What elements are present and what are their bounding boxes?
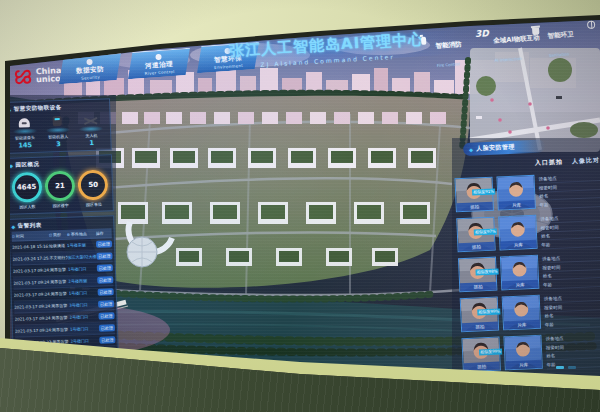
device-stat: 智能摄像头 145 — [7, 114, 42, 150]
device-label: 智能摄像头 — [15, 135, 35, 141]
nav-tab[interactable]: 3D 全域AI物联互动 AI Interaction — [475, 25, 538, 67]
alarm-type: 周界告警 — [51, 303, 69, 309]
device-stat: 智能机器人 3 — [41, 113, 76, 149]
alarm-type: 周界告警 — [51, 291, 69, 297]
capture-label: 抓拍 — [458, 242, 494, 252]
capture-label: 抓拍 — [464, 362, 500, 372]
info-age: 年龄 — [541, 239, 600, 250]
face-info-column: 设备地点 报警时间 姓名 年龄 — [544, 292, 600, 331]
tab-sublabel: Sanitation — [549, 52, 570, 58]
tab-sublabel: Fire Control — [437, 62, 460, 69]
tab-sublabel: AI Interaction — [495, 56, 522, 63]
alarm-time: 2021-03-17 09:24:35 — [13, 268, 50, 274]
alarm-place-link[interactable]: 3号楼门口 — [69, 302, 98, 308]
face-library-photo[interactable]: 片库 — [503, 335, 542, 371]
control-room-photo: China unicom中国联通 数据安防 Security 河道治理 Rive… — [0, 0, 600, 412]
face-library-photo[interactable]: 片库 — [496, 175, 535, 211]
stat-label: 园区人数 — [19, 204, 35, 210]
alarm-time: 2021-03-17 09:24:20 — [15, 327, 52, 333]
stat-label: 园区楼宇 — [53, 203, 69, 209]
nav-tab[interactable]: 一网统管 Manage — [587, 15, 600, 57]
face-capture-photo[interactable]: 相似度98% 抓拍 — [458, 257, 497, 293]
stat-value: 4645 — [11, 172, 42, 203]
dome-camera-icon — [19, 118, 30, 127]
face-header-label: 人脸安防管理 — [476, 143, 515, 154]
face-info-column: 设备地点 报警时间 姓名 年龄 — [538, 172, 600, 211]
alarm-place-link[interactable]: 2号楼门口 — [70, 338, 99, 344]
alarm-type: 垃圾满溢 — [49, 243, 67, 249]
face-subtabs: 入口抓拍 人像比对 — [454, 156, 600, 171]
capture-label: 抓拍 — [462, 322, 498, 332]
glow-base — [79, 126, 103, 133]
alarm-time: 2021-03-17 09:24:33 — [13, 279, 50, 285]
alarm-type: 不文明行为 — [49, 255, 67, 261]
alarm-action-button[interactable]: 已处理 — [98, 312, 114, 320]
face-capture-photo[interactable]: 相似度99% 抓拍 — [460, 297, 499, 333]
face-library-photo[interactable]: 片库 — [498, 215, 537, 251]
trash-bin-icon — [531, 25, 541, 36]
alarm-table: ⊙时间⊡类型⊕事件地点操作 2021-04-18 15:16:01 垃圾满溢 1… — [12, 228, 116, 349]
drone-icon — [84, 116, 98, 125]
stat-label: 园区单位 — [86, 202, 102, 208]
device-label: 智能机器人 — [48, 134, 68, 140]
alarm-time: 2021-03-17 09:24:31 — [14, 291, 51, 297]
tab-icon — [86, 58, 92, 64]
face-capture-photo[interactable]: 相似度97% 抓拍 — [456, 217, 495, 253]
robot-icon — [53, 116, 62, 126]
similarity-badge: 相似度97% — [474, 229, 497, 236]
library-label: 片库 — [504, 320, 540, 330]
face-match-row: 相似度97% 抓拍 片库 设备地点 报警时间 姓名 年龄 — [456, 212, 600, 255]
alarm-time: 2021-03-17 09:24:26 — [15, 315, 52, 321]
stat-ring: 4645 园区人数 — [11, 172, 42, 210]
iot-devices-panel: ◆ 智慧安防物联设备 智能摄像头 145 智能机器人 3 无人机 1 — [4, 98, 112, 154]
alarm-place-link[interactable]: 张江大厦02大楼 — [67, 254, 96, 260]
capture-label: 抓拍 — [460, 282, 496, 292]
fire-extinguisher-icon — [419, 35, 429, 46]
tag-icon: ⊡ — [49, 232, 53, 237]
alarm-type: 周界告警 — [50, 267, 68, 273]
alarm-action-button[interactable]: 已处理 — [99, 336, 115, 344]
stat-value: 21 — [44, 171, 75, 202]
similarity-badge: 相似度99% — [477, 308, 500, 315]
library-label: 片库 — [506, 360, 542, 370]
alarm-time: 2021-04-18 15:16:01 — [12, 244, 49, 250]
clock-icon: ⊙ — [12, 234, 16, 239]
stat-ring: 21 园区楼宇 — [44, 171, 75, 209]
library-label: 片库 — [502, 280, 538, 290]
column-header: ⊡类型 — [49, 232, 67, 238]
face-info-column: 设备地点 报警时间 姓名 年龄 — [540, 212, 600, 251]
similarity-badge: 相似度98% — [476, 269, 499, 276]
capture-label: 抓拍 — [457, 202, 493, 212]
similarity-badge: 相似度91% — [472, 189, 495, 196]
device-count: 3 — [56, 140, 61, 148]
devices-header: 智慧安防物联设备 — [13, 104, 61, 113]
nav-tab[interactable]: 智能环卫 Sanitation — [531, 20, 594, 62]
face-info-column: 设备地点 报警时间 姓名 年龄 — [542, 252, 600, 291]
park-overview-panel: ◆ 园区概况 4645 园区人数 21 园区楼宇 50 园区单位 — [6, 154, 114, 215]
alarm-action-button[interactable]: 已处理 — [99, 324, 115, 332]
similarity-badge: 相似度99% — [479, 348, 502, 355]
column-header: 操作 — [96, 230, 112, 236]
info-age: 年龄 — [540, 199, 600, 210]
alarm-action-button[interactable]: 已处理 — [97, 264, 113, 272]
alarm-place-link[interactable]: 2号楼西侧 — [68, 278, 97, 284]
face-security-panel: ◆ 人脸安防管理 入口抓拍 人像比对 相似度91% 抓拍 — [453, 137, 600, 378]
pagination-dots[interactable] — [556, 366, 576, 369]
tab-portrait-compare[interactable]: 人像比对 — [572, 156, 600, 166]
device-count: 145 — [18, 141, 32, 149]
alarm-list-panel: ◆ 告警列表 ⊙时间⊡类型⊕事件地点操作 2021-04-18 15:16:01… — [8, 215, 119, 354]
face-library-photo[interactable]: 片库 — [500, 255, 539, 291]
info-age: 年龄 — [543, 279, 600, 290]
face-panel-header: ◆ 人脸安防管理 — [463, 139, 545, 156]
alarm-place-link[interactable]: 1号楼门口 — [69, 290, 98, 296]
tab-icon — [155, 53, 161, 59]
library-label: 片库 — [499, 200, 535, 210]
library-label: 片库 — [500, 240, 536, 250]
face-match-row: 相似度98% 抓拍 片库 设备地点 报警时间 姓名 年龄 — [458, 252, 600, 295]
location-icon: ⊕ — [67, 232, 71, 237]
face-match-row: 相似度99% 抓拍 片库 设备地点 报警时间 姓名 年龄 — [460, 292, 600, 335]
alarm-time: 2021-03-24 17:25:02 — [12, 256, 49, 262]
column-header: ⊙时间 — [12, 233, 49, 239]
stat-value: 50 — [78, 169, 109, 200]
diamond-icon: ◆ — [11, 223, 16, 229]
alarms-header: 告警列表 — [18, 222, 42, 230]
face-match-row: 相似度91% 抓拍 片库 设备地点 报警时间 姓名 年龄 — [454, 172, 600, 215]
tab-label: 智能消防 — [435, 40, 461, 50]
tab-sublabel: Security — [81, 74, 100, 80]
info-age: 年龄 — [545, 319, 600, 330]
alarm-action-button[interactable]: 已处理 — [96, 252, 112, 260]
glow-base — [13, 128, 37, 135]
nav-tab[interactable]: 智能消防 Fire Control — [419, 30, 482, 72]
alarm-place-link[interactable]: 2号楼门口 — [69, 314, 98, 320]
tab-prefix: 3D — [475, 28, 489, 39]
overview-header: 园区概况 — [15, 161, 39, 169]
alarm-time: 2021-03-17 09:24:28 — [14, 303, 51, 309]
face-match-row: 相似度99% 抓拍 片库 设备地点 报警时间 姓名 年龄 — [461, 332, 600, 375]
alarm-action-button[interactable]: 已处理 — [97, 276, 113, 284]
device-stat: 无人机 1 — [74, 111, 109, 147]
diamond-icon: ◆ — [469, 146, 473, 152]
glow-base — [46, 127, 70, 134]
alarm-place-link[interactable]: 1号楼门口 — [68, 266, 97, 272]
device-count: 1 — [89, 139, 94, 147]
unicom-knot-icon — [14, 67, 33, 86]
alarm-place-link[interactable]: 1号楼东侧 — [67, 242, 96, 248]
face-capture-photo[interactable]: 相似度91% 抓拍 — [454, 177, 493, 213]
nav-tab[interactable]: 河道治理 River Control — [126, 47, 192, 78]
device-label: 无人机 — [85, 133, 97, 138]
tab-entrance-capture[interactable]: 入口抓拍 — [535, 158, 563, 168]
face-library-photo[interactable]: 片库 — [502, 295, 541, 331]
alarm-type: 周界告警 — [52, 327, 70, 333]
alarm-action-button[interactable]: 已处理 — [96, 240, 112, 248]
tab-label: 智能环卫 — [547, 30, 573, 40]
alarm-action-button[interactable]: 已处理 — [98, 288, 114, 296]
alarm-type: 周界告警 — [51, 315, 69, 321]
left-panel-column: ◆ 智慧安防物联设备 智能摄像头 145 智能机器人 3 无人机 1 ◆ 园区概… — [4, 98, 119, 358]
alarm-action-button[interactable]: 已处理 — [98, 300, 114, 308]
column-header: ⊕事件地点 — [67, 231, 96, 237]
face-info-column: 设备地点 报警时间 姓名 年龄 — [545, 332, 600, 371]
face-capture-photo[interactable]: 相似度99% 抓拍 — [461, 337, 500, 373]
alarm-type: 周界告警 — [50, 279, 68, 285]
grid-globe-icon — [587, 20, 597, 31]
alarm-place-link[interactable]: 1号楼门口 — [70, 326, 99, 332]
stat-ring: 50 园区单位 — [78, 169, 109, 207]
